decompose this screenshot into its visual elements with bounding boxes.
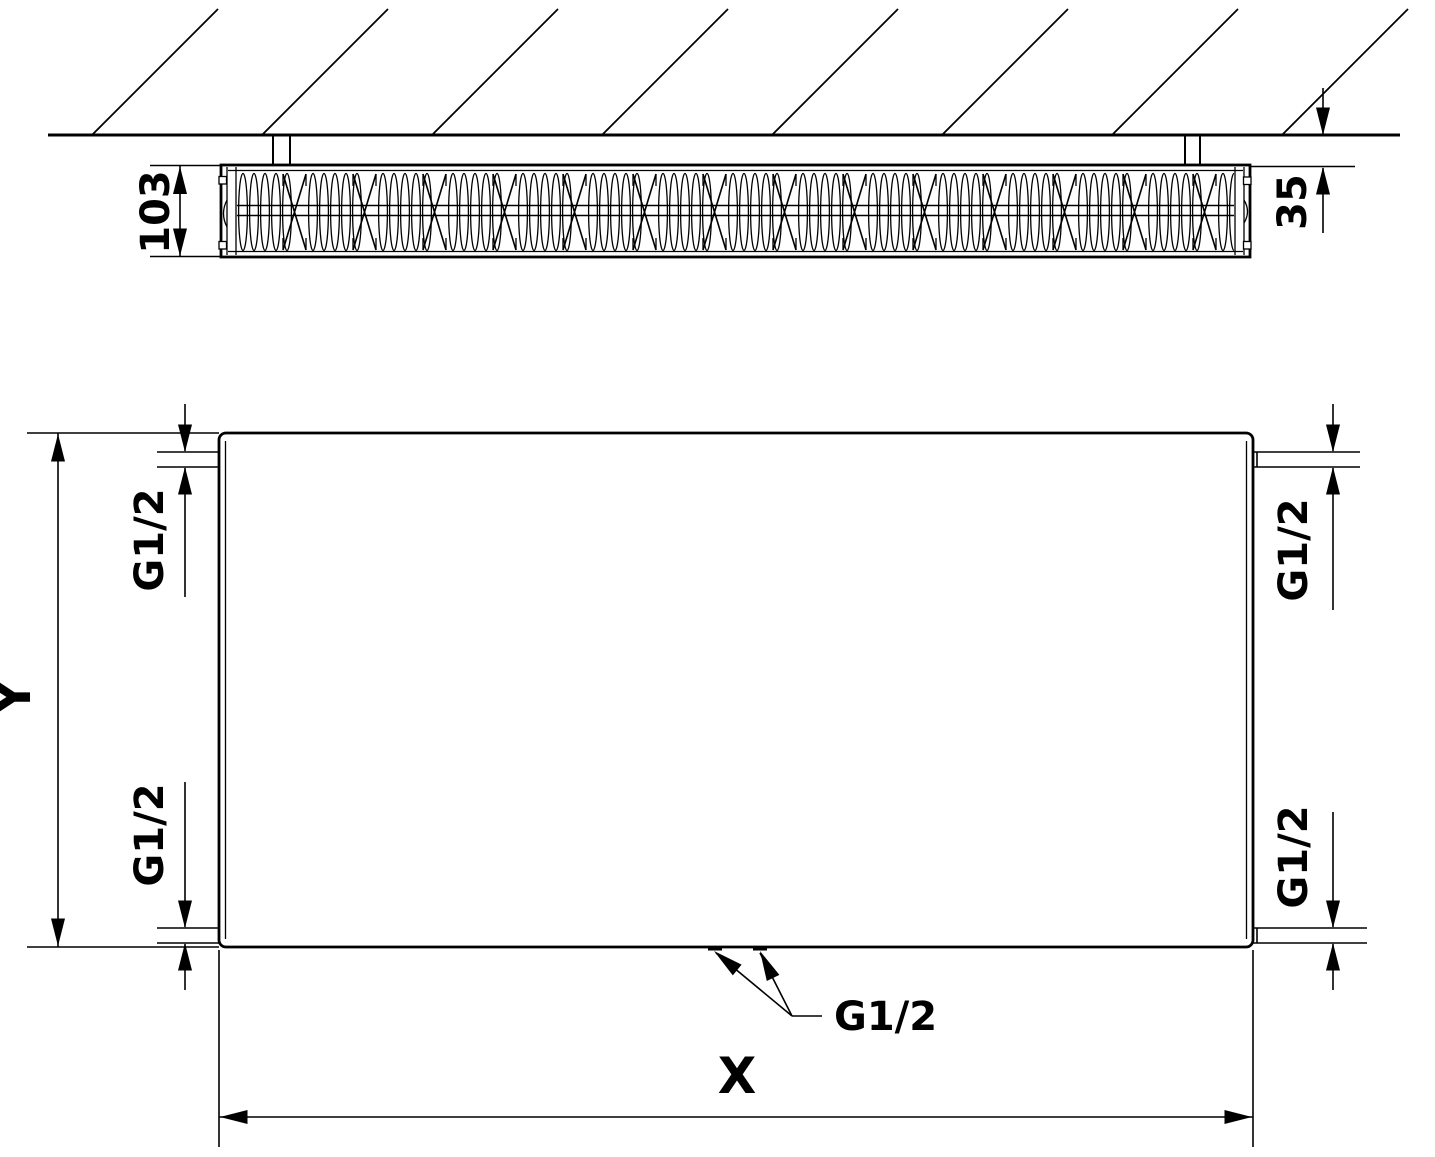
mounting-bracket-right	[1185, 136, 1200, 166]
conn-top-right-label: G1/2	[1271, 498, 1317, 601]
dimension-conn-bottom-right: G1/2	[1271, 805, 1340, 990]
dimension-conn-top-right: G1/2	[1271, 404, 1340, 610]
conn-bottom-left-label: G1/2	[127, 783, 173, 886]
wall-section	[48, 9, 1408, 166]
connection-stub-top-right	[1253, 452, 1360, 467]
dimension-length: X	[219, 950, 1253, 1147]
conn-bottom-center-label: G1/2	[834, 994, 937, 1040]
drawing-canvas: 103 35	[0, 0, 1435, 1157]
height-dimension-label: Y	[0, 678, 42, 716]
mounting-bracket-left	[273, 136, 290, 166]
dimension-conn-bottom-center: G1/2	[714, 951, 937, 1040]
radiator-front-panel	[219, 433, 1253, 947]
wall-hatching	[92, 9, 1408, 135]
conn-top-left-label: G1/2	[127, 488, 173, 591]
length-dimension-label: X	[718, 1047, 757, 1105]
dimension-height: Y	[0, 433, 219, 947]
connection-stub-top-left	[157, 452, 219, 467]
radiator-side-view	[219, 165, 1251, 257]
dimension-wall-distance: 35	[1250, 88, 1355, 233]
dimension-depth: 103	[133, 166, 221, 257]
connection-stub-bottom-left	[157, 928, 219, 943]
convector-fins	[237, 172, 1234, 252]
connection-stub-bottom-right	[1253, 928, 1367, 943]
radiator-front-view	[157, 433, 1367, 951]
conn-bottom-right-label: G1/2	[1271, 805, 1317, 908]
dimension-conn-bottom-left: G1/2	[127, 782, 192, 990]
depth-dimension-label: 103	[133, 170, 179, 254]
radiator-technical-drawing: 103 35	[0, 0, 1435, 1157]
wall-distance-dimension-label: 35	[1270, 174, 1316, 230]
